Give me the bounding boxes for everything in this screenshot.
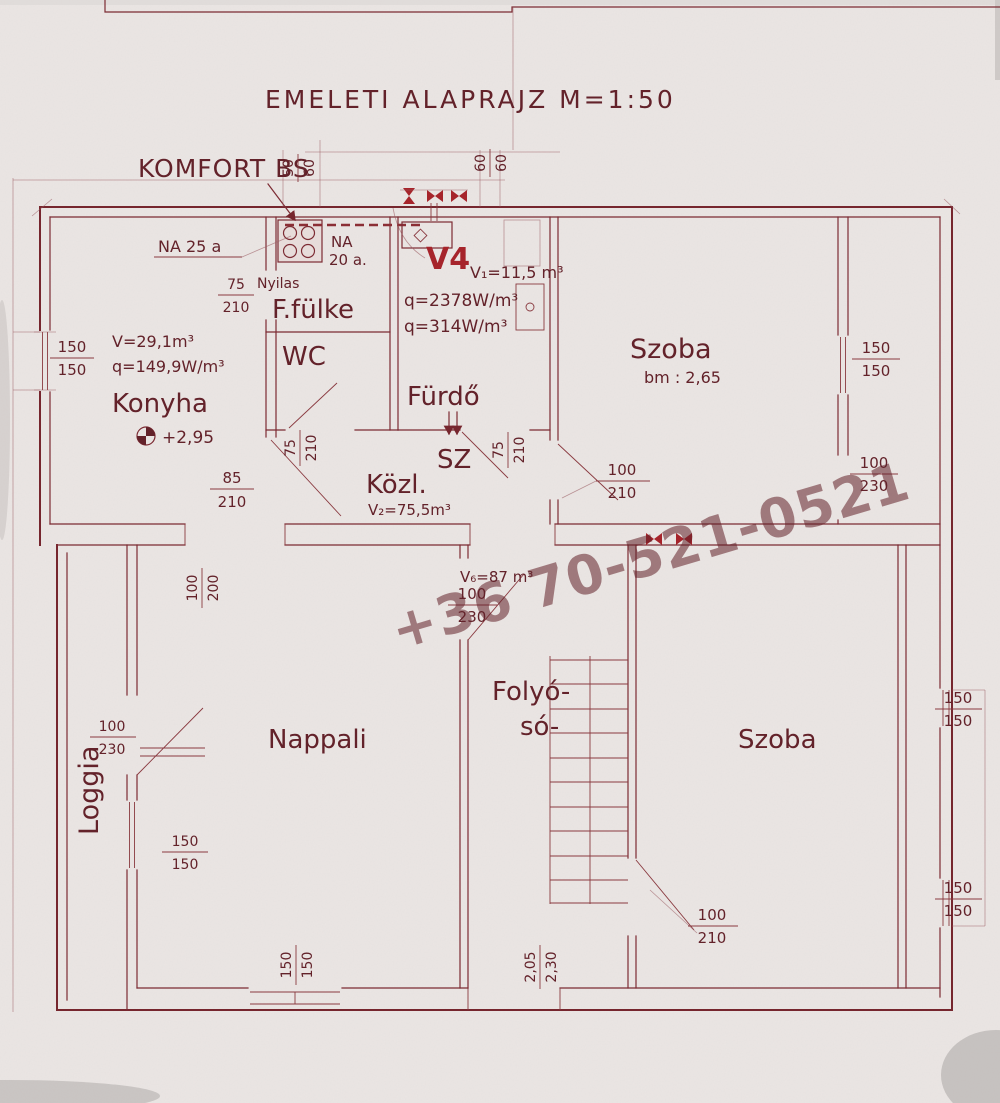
na20-label-line2: 20 a. [329, 251, 367, 269]
dim-value: 150 [944, 879, 973, 897]
floor-plan-drawing: EMELETI ALAPRAJZ M=1:50 KOMFORT BS NA 25… [0, 0, 1000, 1103]
dim-value: 210 [304, 435, 320, 462]
scanned-floor-plan-sheet: EMELETI ALAPRAJZ M=1:50 KOMFORT BS NA 25… [0, 0, 1000, 1103]
konyha-heat-load: q=149,9W/m³ [112, 357, 225, 376]
dim-value: 2,05 [523, 951, 539, 982]
room-label-szoba2: Szoba [738, 725, 817, 755]
dim-value: 150 [944, 902, 973, 920]
room-label-loggia-group: Loggia [74, 746, 105, 835]
dim-value: 230 [99, 742, 126, 758]
dim-value: 75 [283, 439, 299, 457]
nyilas-label: Nyilas [257, 276, 299, 292]
dim-value: 150 [300, 952, 316, 979]
dim-value: 150 [862, 362, 891, 380]
room-label-szoba1: Szoba [630, 334, 712, 365]
dim-value: 150 [172, 834, 199, 850]
room-label-folyoso-line2: só- [520, 712, 559, 742]
dim-value: 60 [473, 154, 489, 172]
kozl-volume: V₂=75,5m³ [368, 501, 451, 519]
dim-value: 210 [512, 437, 528, 464]
dim-value: 100 [185, 575, 201, 602]
dim-value: 150 [944, 689, 973, 707]
dim-value: 100 [698, 906, 727, 924]
dim-value: 100 [608, 461, 637, 479]
dim-value: 150 [862, 339, 891, 357]
room-label-ffulke: F.fülke [272, 295, 354, 325]
dim-value: 200 [206, 575, 222, 602]
na25-label: NA 25 a [158, 237, 221, 256]
room-label-furdo: Fürdő [407, 382, 480, 412]
dim-value: 210 [698, 929, 727, 947]
dim-value: 150 [944, 712, 973, 730]
page-title: EMELETI ALAPRAJZ M=1:50 [265, 85, 676, 114]
dim-value: 210 [608, 484, 637, 502]
dim-value: 210 [218, 493, 247, 511]
dim-value: 75 [491, 441, 507, 459]
konyha-volume: V=29,1m³ [112, 332, 194, 351]
room-label-folyoso-line1: Folyó- [492, 677, 570, 707]
level-mark-icon [137, 427, 155, 445]
dim-value: 150 [172, 857, 199, 873]
szoba1-height: bm : 2,65 [644, 368, 721, 387]
na20-label-line1: NA [331, 233, 353, 251]
dim-value: 2,30 [544, 951, 560, 982]
room-label-kozl: Közl. [366, 470, 427, 500]
v4-volume: V₁=11,5 m³ [470, 263, 563, 282]
room-label-loggia: Loggia [74, 746, 105, 835]
dim-value: 50 [281, 159, 297, 177]
room-label-konyha: Konyha [112, 389, 208, 419]
dim-value: 60 [494, 154, 510, 172]
room-label-wc: WC [282, 342, 326, 372]
dim-value: 210 [223, 300, 250, 316]
v4-vent-load: q=314W/m³ [404, 317, 507, 337]
dim-value: 150 [279, 952, 295, 979]
v4-heat-load: q=2378W/m³ [404, 291, 518, 311]
room-label-nappali: Nappali [268, 725, 367, 755]
dim-value: 150 [58, 338, 87, 356]
dim-value: 85 [222, 469, 241, 487]
dim-value: 150 [58, 361, 87, 379]
v4-label: V4 [426, 242, 470, 277]
dim-value: 60 [302, 159, 318, 177]
dim-value: 75 [227, 277, 245, 293]
dim-value: 100 [99, 719, 126, 735]
room-label-sz: SZ [437, 445, 471, 475]
level-label: +2,95 [162, 428, 214, 448]
